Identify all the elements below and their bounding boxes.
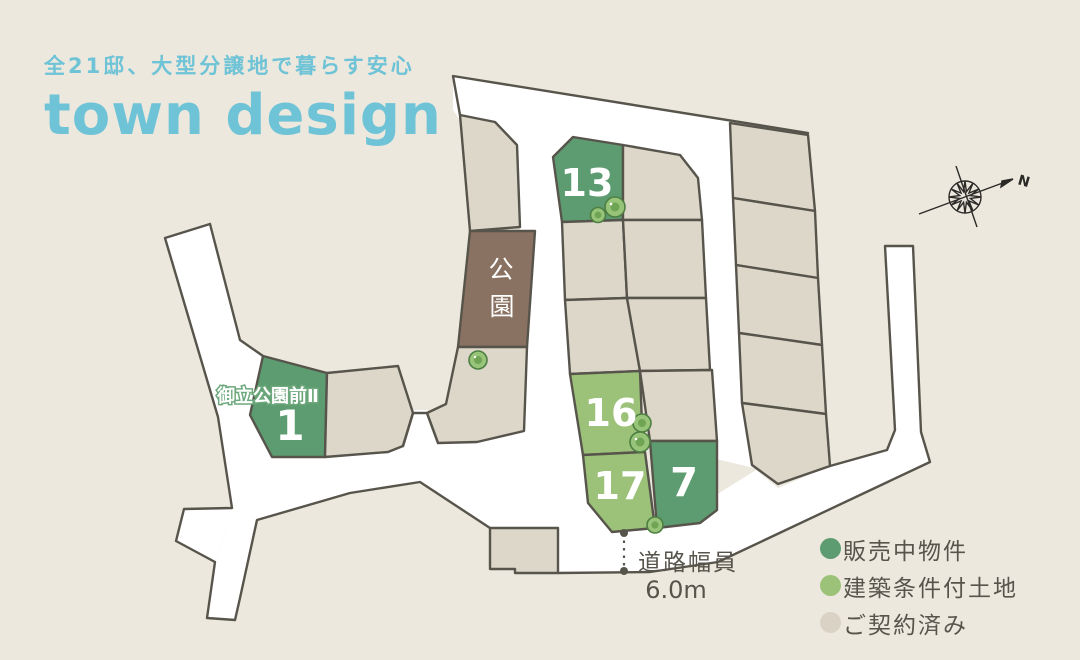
measure-dot-bottom xyxy=(620,567,628,575)
lot-contracted xyxy=(623,220,706,298)
compass-icon: N xyxy=(919,166,1032,227)
legend-swatch-contracted xyxy=(820,612,841,633)
lot-contracted xyxy=(562,220,627,300)
tree-icon xyxy=(469,351,487,369)
lot-contracted xyxy=(736,265,822,345)
lot-contracted xyxy=(490,528,558,573)
lot-contracted xyxy=(627,298,710,371)
park-lot xyxy=(458,231,535,347)
project-name-label: 御立公園前Ⅱ xyxy=(216,385,319,407)
legend-item-for-sale: 販売中物件 xyxy=(820,530,1018,567)
legend-item-conditional: 建築条件付土地 xyxy=(820,567,1018,604)
page-subtitle: 全21邸、大型分譲地で暮らす安心 xyxy=(44,50,442,80)
lot-contracted xyxy=(730,123,815,211)
page-title: town design xyxy=(44,88,442,144)
road-width-label: 道路幅員 xyxy=(638,550,738,576)
legend-swatch-conditional xyxy=(820,575,841,596)
lot-7-number: 7 xyxy=(670,460,698,506)
lot-contracted xyxy=(640,370,717,441)
park-label-char2: 園 xyxy=(489,292,514,321)
legend-label: 販売中物件 xyxy=(843,532,968,566)
tree-icon xyxy=(647,517,663,533)
legend: 販売中物件 建築条件付土地 ご契約済み xyxy=(820,530,1018,641)
lot-contracted xyxy=(325,366,413,457)
road-width-value: 6.0m xyxy=(645,576,707,604)
header: 全21邸、大型分譲地で暮らす安心 town design xyxy=(44,50,442,144)
measure-dot-top xyxy=(620,529,628,537)
tree-icon xyxy=(630,432,650,452)
lot-contracted xyxy=(739,333,826,414)
town-design-page: 13 16 17 7 1 御立公園前Ⅱ 公 園 道路幅員 6.0m xyxy=(0,0,1080,660)
tree-icon xyxy=(591,208,606,223)
lot-13-number: 13 xyxy=(561,161,614,205)
legend-label: 建築条件付土地 xyxy=(843,569,1018,603)
lot-1-number: 1 xyxy=(275,401,304,450)
park-label-char1: 公 xyxy=(488,255,513,284)
lot-16-number: 16 xyxy=(585,391,638,435)
legend-swatch-for-sale xyxy=(820,538,841,559)
legend-label: ご契約済み xyxy=(843,606,968,640)
lot-17-number: 17 xyxy=(594,464,647,508)
compass-north-label: N xyxy=(1016,172,1032,191)
legend-item-contracted: ご契約済み xyxy=(820,604,1018,641)
